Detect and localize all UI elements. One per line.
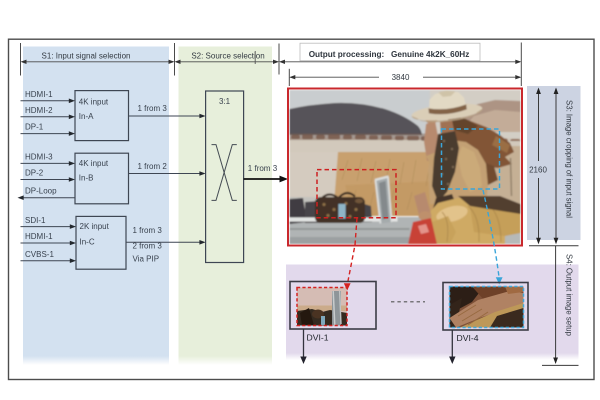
svg-text:S1: Input signal selection: S1: Input signal selection	[42, 51, 131, 60]
svg-text:1 from 2: 1 from 2	[138, 162, 168, 171]
svg-text:DP-1: DP-1	[25, 123, 44, 132]
svg-text:S4: Output image setup: S4: Output image setup	[565, 254, 574, 337]
svg-text:DVI-4: DVI-4	[457, 333, 479, 343]
svg-text:DVI-1: DVI-1	[307, 333, 329, 343]
svg-text:1 from 3: 1 from 3	[248, 164, 278, 173]
svg-text:DP-Loop: DP-Loop	[25, 187, 57, 196]
svg-text:CVBS-1: CVBS-1	[25, 250, 54, 259]
svg-text:In-C: In-C	[80, 238, 95, 247]
svg-text:Via PIP: Via PIP	[133, 255, 160, 264]
svg-text:S3: Image cropping of input si: S3: Image cropping of input signal	[565, 100, 574, 218]
svg-text:3:1: 3:1	[219, 97, 231, 106]
svg-text:Output processing: Genuine 4: Output processing: Genuine 4k2K_60Hz	[309, 50, 470, 59]
svg-text:In-B: In-B	[79, 174, 94, 183]
svg-text:S2: Source selection: S2: Source selection	[191, 51, 264, 60]
svg-text:2160: 2160	[529, 166, 547, 175]
svg-text:2K input: 2K input	[80, 222, 110, 231]
svg-text:HDMI-2: HDMI-2	[25, 106, 53, 115]
svg-text:SDI-1: SDI-1	[25, 216, 46, 225]
svg-text:1 from 3: 1 from 3	[138, 104, 168, 113]
svg-text:DP-2: DP-2	[25, 168, 44, 177]
svg-text:3840: 3840	[392, 73, 410, 82]
svg-text:HDMI-1: HDMI-1	[25, 232, 53, 241]
svg-text:4K input: 4K input	[79, 159, 109, 168]
svg-text:4K input: 4K input	[79, 98, 109, 107]
svg-text:In-A: In-A	[79, 112, 94, 121]
svg-text:HDMI-3: HDMI-3	[25, 153, 53, 162]
svg-text:HDMI-1: HDMI-1	[25, 90, 53, 99]
svg-text:1 from 3: 1 from 3	[133, 226, 163, 235]
